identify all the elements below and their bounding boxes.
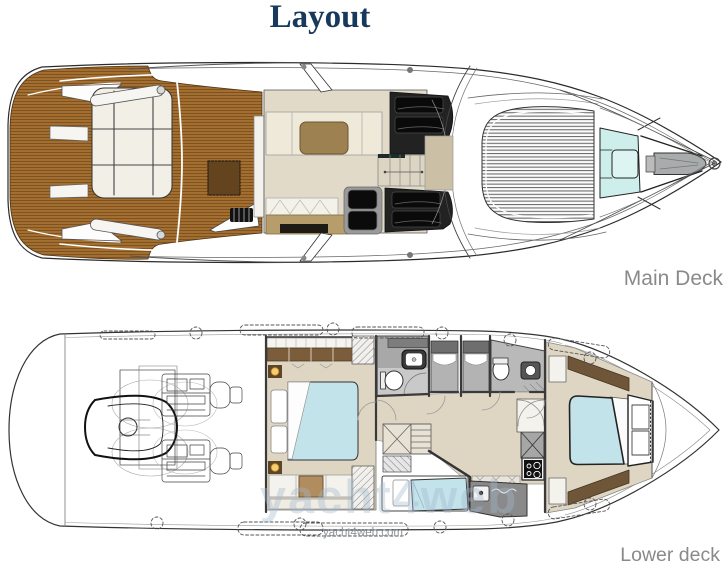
svg-text:Main Deck: Main Deck [624,267,724,290]
svg-text:yacht4web.com: yacht4web.com [323,527,403,539]
svg-text:Layout: Layout [270,0,371,35]
svg-text:Lower deck: Lower deck [620,544,720,562]
svg-text:yacht4web: yacht4web [260,470,518,523]
